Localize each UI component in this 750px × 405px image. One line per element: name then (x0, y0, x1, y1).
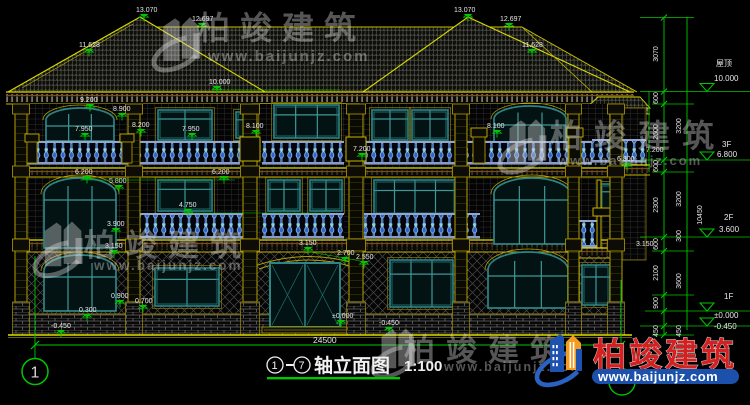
svg-text:6.200: 6.200 (212, 169, 230, 176)
svg-text:10450: 10450 (697, 205, 704, 225)
svg-text:5.800: 5.800 (109, 178, 127, 185)
svg-text:8.900: 8.900 (113, 106, 131, 113)
svg-text:600: 600 (653, 238, 660, 250)
svg-text:1: 1 (31, 365, 40, 382)
svg-text:10.000: 10.000 (209, 79, 231, 86)
svg-text:www.baijunjz.com: www.baijunjz.com (557, 153, 702, 168)
svg-text:2100: 2100 (653, 265, 660, 281)
svg-text:0.900: 0.900 (111, 293, 129, 300)
svg-text:-0.450: -0.450 (714, 322, 737, 331)
svg-text:2.700: 2.700 (337, 250, 355, 257)
svg-text:8.100: 8.100 (487, 123, 505, 130)
svg-text:7.950: 7.950 (75, 126, 93, 133)
svg-text:4.750: 4.750 (179, 202, 197, 209)
svg-text:3.600: 3.600 (719, 225, 740, 234)
svg-text:8.100: 8.100 (246, 123, 264, 130)
svg-text:0.700: 0.700 (135, 298, 153, 305)
svg-text:11.628: 11.628 (522, 42, 543, 49)
svg-text:3600: 3600 (676, 273, 683, 289)
svg-text:柏竣建筑: 柏竣建筑 (198, 10, 366, 46)
svg-text:13.070: 13.070 (454, 7, 476, 14)
svg-text:3.150: 3.150 (636, 241, 654, 248)
svg-text:3.150: 3.150 (299, 240, 317, 247)
svg-text:6.200: 6.200 (75, 169, 93, 176)
svg-text:11.628: 11.628 (79, 42, 100, 49)
svg-text:柏竣建筑: 柏竣建筑 (593, 336, 737, 373)
svg-text:7: 7 (299, 360, 305, 372)
svg-text:600: 600 (653, 92, 660, 104)
svg-text:1:100: 1:100 (404, 358, 442, 375)
svg-text:1F: 1F (724, 292, 733, 301)
svg-text:900: 900 (653, 297, 660, 309)
svg-text:7.200: 7.200 (353, 146, 371, 153)
svg-text:www.baijunjz.com: www.baijunjz.com (93, 258, 243, 273)
svg-text:±0.000: ±0.000 (714, 311, 739, 320)
svg-text:轴立面图: 轴立面图 (314, 354, 390, 377)
svg-text:-0.450: -0.450 (51, 323, 71, 330)
svg-text:3070: 3070 (653, 46, 660, 62)
svg-text:柏竣建筑: 柏竣建筑 (550, 118, 726, 154)
svg-text:13.070: 13.070 (136, 7, 158, 14)
svg-text:24500: 24500 (313, 335, 337, 345)
svg-text:0.300: 0.300 (79, 307, 97, 314)
svg-text:2F: 2F (724, 213, 733, 222)
svg-text:1: 1 (272, 360, 278, 372)
svg-text:www.baijunjz.com: www.baijunjz.com (597, 369, 718, 384)
svg-text:-0.450: -0.450 (379, 320, 399, 327)
svg-text:3.900: 3.900 (107, 221, 125, 228)
svg-text:±0.000: ±0.000 (332, 313, 353, 320)
svg-text:12.697: 12.697 (500, 16, 522, 23)
svg-text:300: 300 (676, 230, 683, 242)
svg-text:9.200: 9.200 (80, 97, 98, 104)
svg-text:2.550: 2.550 (356, 254, 374, 261)
svg-text:2300: 2300 (653, 197, 660, 213)
svg-text:www.baijunjz.com: www.baijunjz.com (207, 48, 369, 65)
svg-text:10.000: 10.000 (714, 74, 739, 83)
svg-text:屋顶: 屋顶 (716, 59, 732, 68)
svg-text:8.200: 8.200 (132, 122, 150, 129)
svg-text:3200: 3200 (676, 191, 683, 207)
svg-text:7.950: 7.950 (182, 126, 200, 133)
